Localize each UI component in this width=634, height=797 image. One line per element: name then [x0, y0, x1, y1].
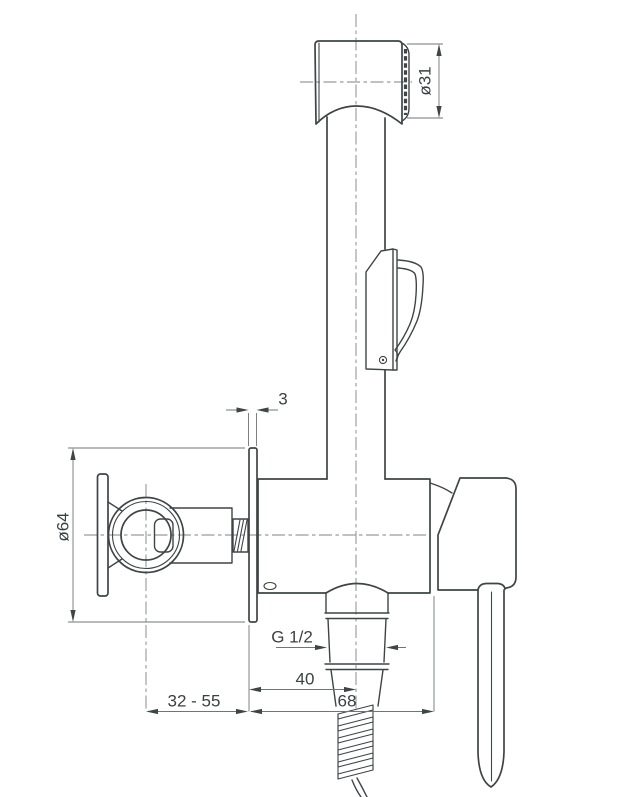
knurl-hatching: [234, 520, 247, 551]
dim64-arrow-down: [70, 610, 75, 622]
dim3-arrow-right: [257, 407, 269, 412]
dim3255-label: 32 - 55: [168, 692, 221, 711]
spray-nozzle-holder: [430, 478, 516, 787]
dim3255-arrow-left: [146, 709, 158, 714]
hose-coil-4: [338, 741, 373, 755]
outlet-connector: [325, 584, 389, 707]
dim31-arrow-up: [436, 44, 441, 56]
dim3-label: 3: [278, 390, 287, 409]
handle-neck-lower: [108, 559, 122, 568]
technical-drawing-canvas: ø31 3 ø64 G 1/2 40 68: [0, 0, 634, 797]
dim40-arrow-left: [249, 687, 261, 692]
bracket-hook-outer: [396, 260, 423, 361]
dim64-label: ø64: [54, 512, 73, 541]
body-drain-hole: [264, 583, 276, 590]
holder-neck-fillet: [430, 483, 452, 493]
hose-coil-5: [338, 753, 373, 767]
dim31-label: ø31: [416, 66, 435, 95]
hose-coil-3: [338, 729, 373, 743]
hose-coil-6: [338, 765, 373, 779]
dim3-arrow-left: [237, 407, 249, 412]
outlet-arch: [326, 584, 388, 594]
bracket-screw-center: [382, 359, 384, 361]
flexible-hose: [338, 705, 373, 797]
page: ø31 3 ø64 G 1/2 40 68: [0, 0, 634, 797]
dim68-arrow-right: [422, 709, 434, 714]
centerlines: [84, 14, 428, 712]
wall-bracket: [366, 249, 423, 370]
valve-stem: [170, 508, 248, 563]
hose-tail: [352, 778, 367, 797]
dim-spray-face-diameter: ø31: [407, 44, 443, 118]
handle-neck-upper: [108, 502, 122, 511]
spray-head: [315, 41, 409, 124]
spray-head-body: [315, 41, 402, 124]
dim31-arrow-down: [436, 106, 441, 118]
dim-rosette-thickness: 3: [226, 390, 288, 447]
valve-body: [258, 479, 430, 593]
body-outline: [258, 479, 430, 593]
dim40-label: 40: [296, 670, 315, 689]
holder-outline: [438, 478, 516, 590]
dim-mounting-depth-range: 32 - 55: [146, 692, 248, 715]
thread-arrow-left: [315, 645, 327, 650]
dim-body-projection: 68: [250, 596, 434, 714]
bracket-plate: [366, 249, 393, 370]
thread-arrow-right: [386, 645, 398, 650]
dim3255-arrow-right: [236, 709, 248, 714]
dim64-arrow-up: [70, 448, 75, 460]
dim68-label: 68: [338, 692, 357, 711]
outlet-ring: [325, 664, 389, 670]
bracket-hook-inner: [395, 268, 416, 350]
dim68-arrow-left: [250, 709, 262, 714]
thread-label: G 1/2: [271, 628, 313, 647]
hose-coil-2: [338, 717, 373, 731]
dim3-extension-lines: [249, 413, 257, 446]
outlet-nut: [325, 593, 389, 619]
outlet-cone-upper: [328, 619, 386, 662]
